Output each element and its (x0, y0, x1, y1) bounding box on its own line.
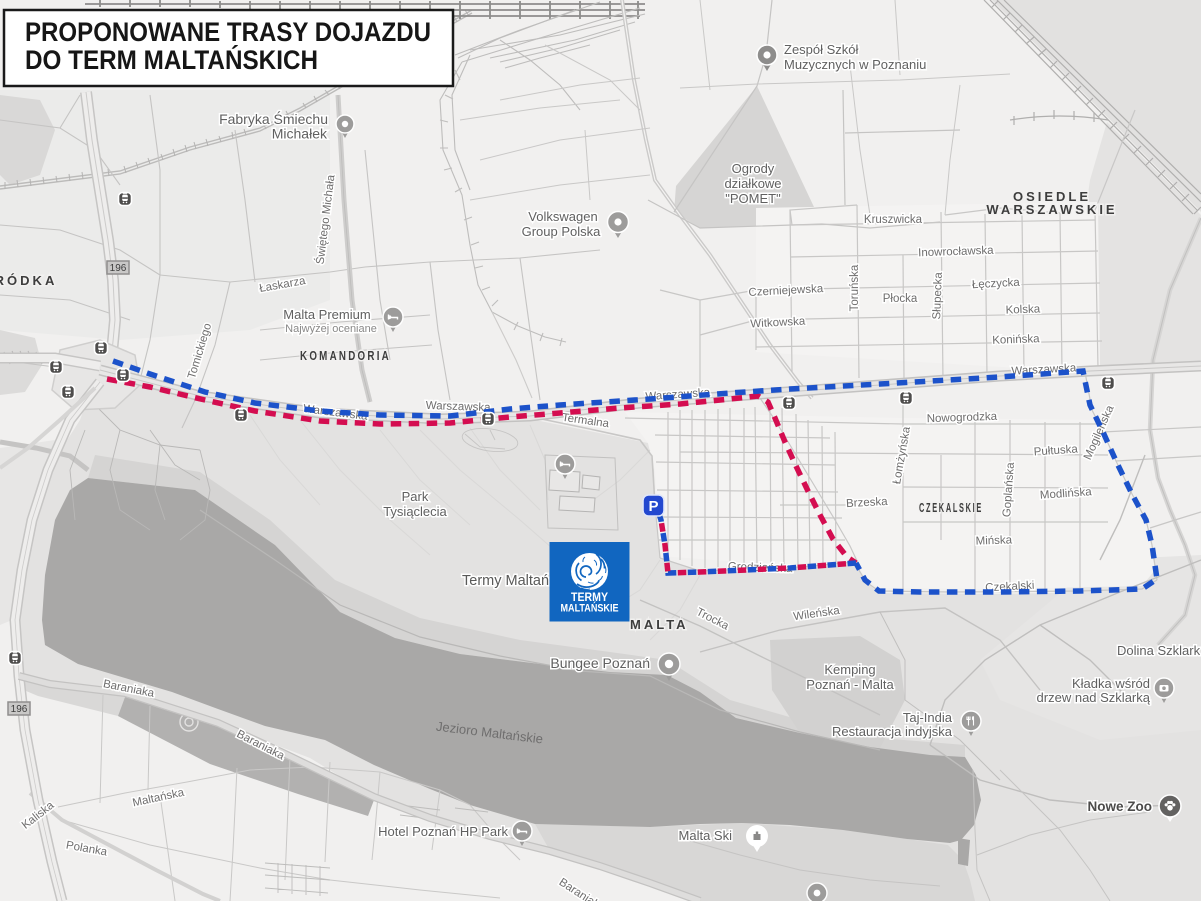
svg-text:196: 196 (110, 263, 127, 274)
svg-text:Muzycznych w Poznaniu: Muzycznych w Poznaniu (784, 57, 926, 72)
svg-text:Volkswagen: Volkswagen (528, 209, 597, 224)
svg-text:Poznań - Malta: Poznań - Malta (806, 677, 894, 692)
svg-text:MALTAŃSKIE: MALTAŃSKIE (561, 602, 619, 615)
svg-text:Malta Premium: Malta Premium (283, 307, 370, 322)
svg-text:Kemping: Kemping (824, 662, 875, 677)
svg-text:Mińska: Mińska (975, 534, 1012, 547)
svg-text:PROPONOWANE TRASY DOJAZDU: PROPONOWANE TRASY DOJAZDU (25, 17, 431, 47)
svg-text:Najwyżej oceniane: Najwyżej oceniane (285, 323, 377, 335)
svg-text:Hotel Poznań HP Park: Hotel Poznań HP Park (378, 824, 508, 839)
svg-text:Warszawska: Warszawska (426, 400, 492, 414)
svg-text:Nowogrodzka: Nowogrodzka (927, 411, 998, 425)
svg-text:"POMET": "POMET" (725, 191, 781, 206)
svg-text:Zespół Szkół: Zespół Szkół (784, 42, 859, 57)
svg-text:Dolina Szklark: Dolina Szklark (1117, 643, 1201, 658)
svg-text:Taj-India: Taj-India (903, 710, 953, 725)
svg-text:Fabryka Śmiechu: Fabryka Śmiechu (219, 110, 328, 127)
svg-text:Bungee Poznań: Bungee Poznań (550, 655, 650, 671)
svg-text:KOMANDORIA: KOMANDORIA (300, 348, 391, 363)
svg-text:Tysiąclecia: Tysiąclecia (383, 504, 447, 519)
svg-text:CZEKALSKIE: CZEKALSKIE (919, 500, 983, 515)
svg-text:Kładka wśród: Kładka wśród (1072, 676, 1150, 691)
svg-text:Konińska: Konińska (992, 333, 1040, 347)
svg-text:Brzeska: Brzeska (846, 496, 889, 510)
svg-text:Kolska: Kolska (1005, 303, 1041, 316)
svg-text:DO TERM MALTAŃSKICH: DO TERM MALTAŃSKICH (25, 44, 318, 75)
svg-text:Restauracja indyjska: Restauracja indyjska (832, 724, 953, 739)
svg-text:Płocka: Płocka (883, 293, 918, 305)
svg-text:Malta Ski: Malta Ski (679, 828, 733, 843)
svg-text:Toruńska: Toruńska (849, 264, 861, 311)
svg-text:drzew nad Szklarką: drzew nad Szklarką (1037, 690, 1151, 705)
svg-text:Nowe Zoo: Nowe Zoo (1088, 799, 1153, 814)
svg-text:Słupecka: Słupecka (931, 271, 945, 319)
svg-text:Group Polska: Group Polska (522, 224, 602, 239)
svg-text:Łęczycka: Łęczycka (972, 277, 1021, 292)
svg-text:196: 196 (11, 704, 28, 715)
svg-text:WARSZAWSKIE: WARSZAWSKIE (986, 202, 1117, 217)
svg-text:MALTA: MALTA (630, 617, 689, 632)
svg-text:Park: Park (402, 489, 429, 504)
svg-text:ŚRÓDKA: ŚRÓDKA (0, 273, 57, 288)
svg-text:działkowe: działkowe (724, 176, 781, 191)
svg-text:Ogrody: Ogrody (732, 161, 775, 176)
svg-text:Kruszwicka: Kruszwicka (864, 214, 923, 226)
svg-text:P: P (648, 498, 658, 515)
svg-text:Michałek: Michałek (272, 126, 328, 142)
